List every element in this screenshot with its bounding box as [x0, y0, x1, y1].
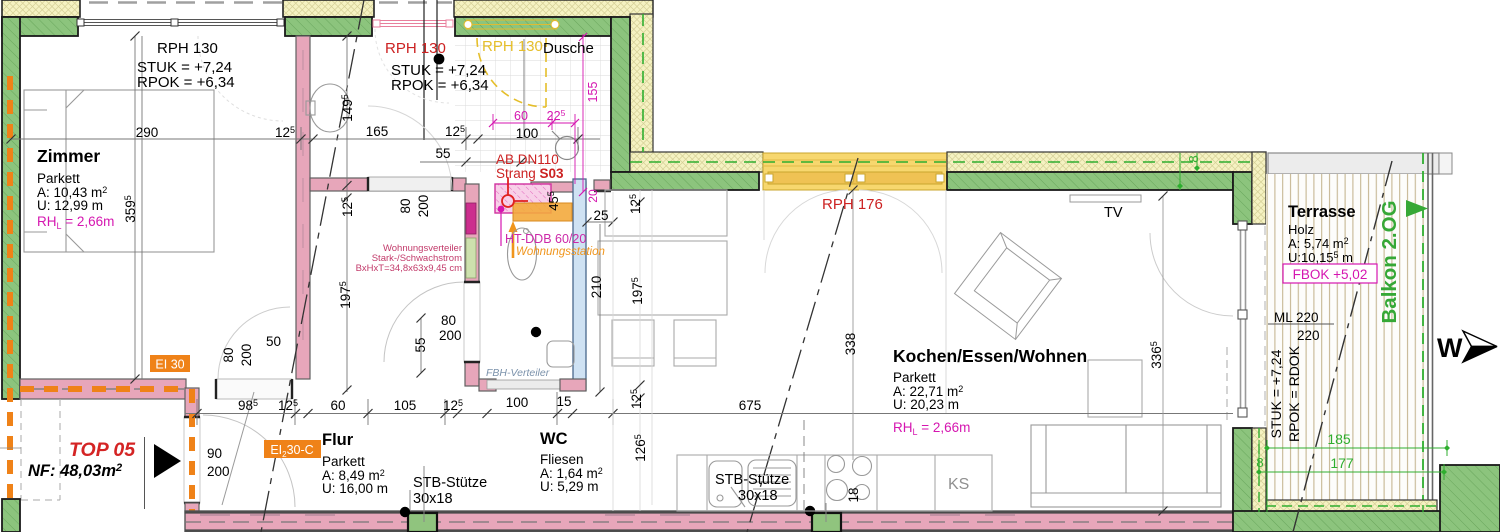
svg-text:30x18: 30x18 [413, 491, 453, 507]
svg-text:200: 200 [439, 328, 462, 343]
svg-text:BxHxT=34,8x63x9,45 cm: BxHxT=34,8x63x9,45 cm [356, 263, 462, 274]
svg-text:338: 338 [843, 333, 858, 356]
svg-text:STUK = +7,24: STUK = +7,24 [1268, 349, 1284, 438]
svg-text:RPH 130: RPH 130 [385, 40, 446, 57]
svg-text:NF: 48,03m2: NF: 48,03m2 [28, 462, 122, 480]
svg-text:W: W [1437, 333, 1463, 363]
svg-text:675: 675 [739, 398, 762, 413]
svg-text:30x18: 30x18 [738, 488, 778, 504]
svg-text:Holz: Holz [1288, 222, 1314, 237]
svg-text:Parkett: Parkett [37, 171, 80, 186]
svg-text:Terrasse: Terrasse [1288, 203, 1356, 221]
svg-text:185: 185 [1327, 431, 1351, 447]
svg-text:200: 200 [416, 195, 431, 218]
svg-text:KS: KS [948, 476, 969, 493]
svg-text:U: 20,23 m: U: 20,23 m [893, 397, 959, 412]
svg-text:U: 5,29 m: U: 5,29 m [540, 479, 599, 494]
svg-text:8: 8 [1186, 155, 1201, 162]
svg-text:Dusche: Dusche [543, 40, 594, 57]
svg-text:60: 60 [330, 398, 345, 413]
svg-text:RPH 130: RPH 130 [157, 40, 218, 57]
svg-text:STB-Stütze: STB-Stütze [715, 472, 789, 488]
svg-text:8: 8 [1256, 455, 1263, 470]
svg-text:105: 105 [394, 398, 417, 413]
svg-text:200: 200 [207, 464, 230, 479]
svg-text:ML 220: ML 220 [1274, 310, 1319, 325]
svg-text:FBOK +5,02: FBOK +5,02 [1293, 267, 1368, 282]
svg-text:FBH-Verteiler: FBH-Verteiler [486, 367, 550, 379]
svg-text:RPH 130: RPH 130 [482, 38, 543, 55]
svg-text:Balkon 2.OG: Balkon 2.OG [1378, 200, 1401, 323]
svg-text:U:10,155 m: U:10,155 m [1288, 250, 1353, 265]
svg-text:80: 80 [398, 198, 413, 213]
svg-text:TV: TV [1104, 205, 1123, 221]
svg-text:55: 55 [435, 146, 450, 161]
svg-text:100: 100 [506, 395, 529, 410]
svg-text:WC: WC [540, 430, 568, 448]
svg-text:Parkett: Parkett [893, 370, 936, 385]
svg-text:U: 12,99 m: U: 12,99 m [37, 198, 103, 213]
svg-text:Strang S03: Strang S03 [496, 166, 564, 181]
svg-text:210: 210 [589, 276, 604, 299]
svg-text:90: 90 [207, 446, 222, 461]
svg-text:165: 165 [366, 124, 389, 139]
svg-text:18: 18 [846, 487, 861, 502]
svg-text:Parkett: Parkett [322, 454, 365, 469]
svg-text:EI230-C: EI230-C [270, 443, 313, 459]
svg-text:80: 80 [441, 313, 456, 328]
svg-text:25: 25 [593, 208, 608, 223]
svg-text:EI 30: EI 30 [155, 358, 184, 372]
svg-text:60: 60 [514, 109, 528, 123]
svg-text:15: 15 [556, 394, 571, 409]
svg-text:Kochen/Essen/Wohnen: Kochen/Essen/Wohnen [893, 346, 1087, 366]
svg-text:177: 177 [1330, 455, 1354, 471]
svg-text:HT-DDB 60/20: HT-DDB 60/20 [505, 232, 586, 246]
svg-text:RPOK = +6,34: RPOK = +6,34 [391, 77, 489, 94]
svg-text:RPOK = +6,34: RPOK = +6,34 [137, 74, 235, 91]
svg-text:RPH 176: RPH 176 [822, 196, 883, 213]
svg-text:U: 16,00 m: U: 16,00 m [322, 481, 388, 496]
svg-text:Flur: Flur [322, 431, 354, 449]
svg-text:RHL = 2,66m: RHL = 2,66m [37, 214, 114, 231]
svg-text:55: 55 [413, 337, 428, 352]
svg-text:Fliesen: Fliesen [540, 452, 584, 467]
svg-text:50: 50 [266, 334, 281, 349]
svg-text:AB DN110: AB DN110 [496, 152, 559, 167]
svg-text:RPOK = RDOK: RPOK = RDOK [1286, 345, 1302, 442]
svg-text:155: 155 [586, 82, 600, 103]
svg-text:Wohnungsstation: Wohnungsstation [516, 246, 605, 258]
svg-text:290: 290 [136, 125, 159, 140]
svg-text:RHL = 2,66m: RHL = 2,66m [893, 420, 970, 437]
svg-text:220: 220 [1297, 328, 1320, 343]
svg-text:Zimmer: Zimmer [37, 146, 100, 166]
svg-text:20: 20 [586, 189, 600, 203]
svg-text:TOP 05: TOP 05 [69, 439, 136, 461]
svg-text:200: 200 [239, 344, 254, 367]
svg-text:A: 5,74 m2: A: 5,74 m2 [1288, 236, 1349, 251]
svg-text:80: 80 [221, 347, 236, 362]
svg-text:100: 100 [516, 126, 539, 141]
